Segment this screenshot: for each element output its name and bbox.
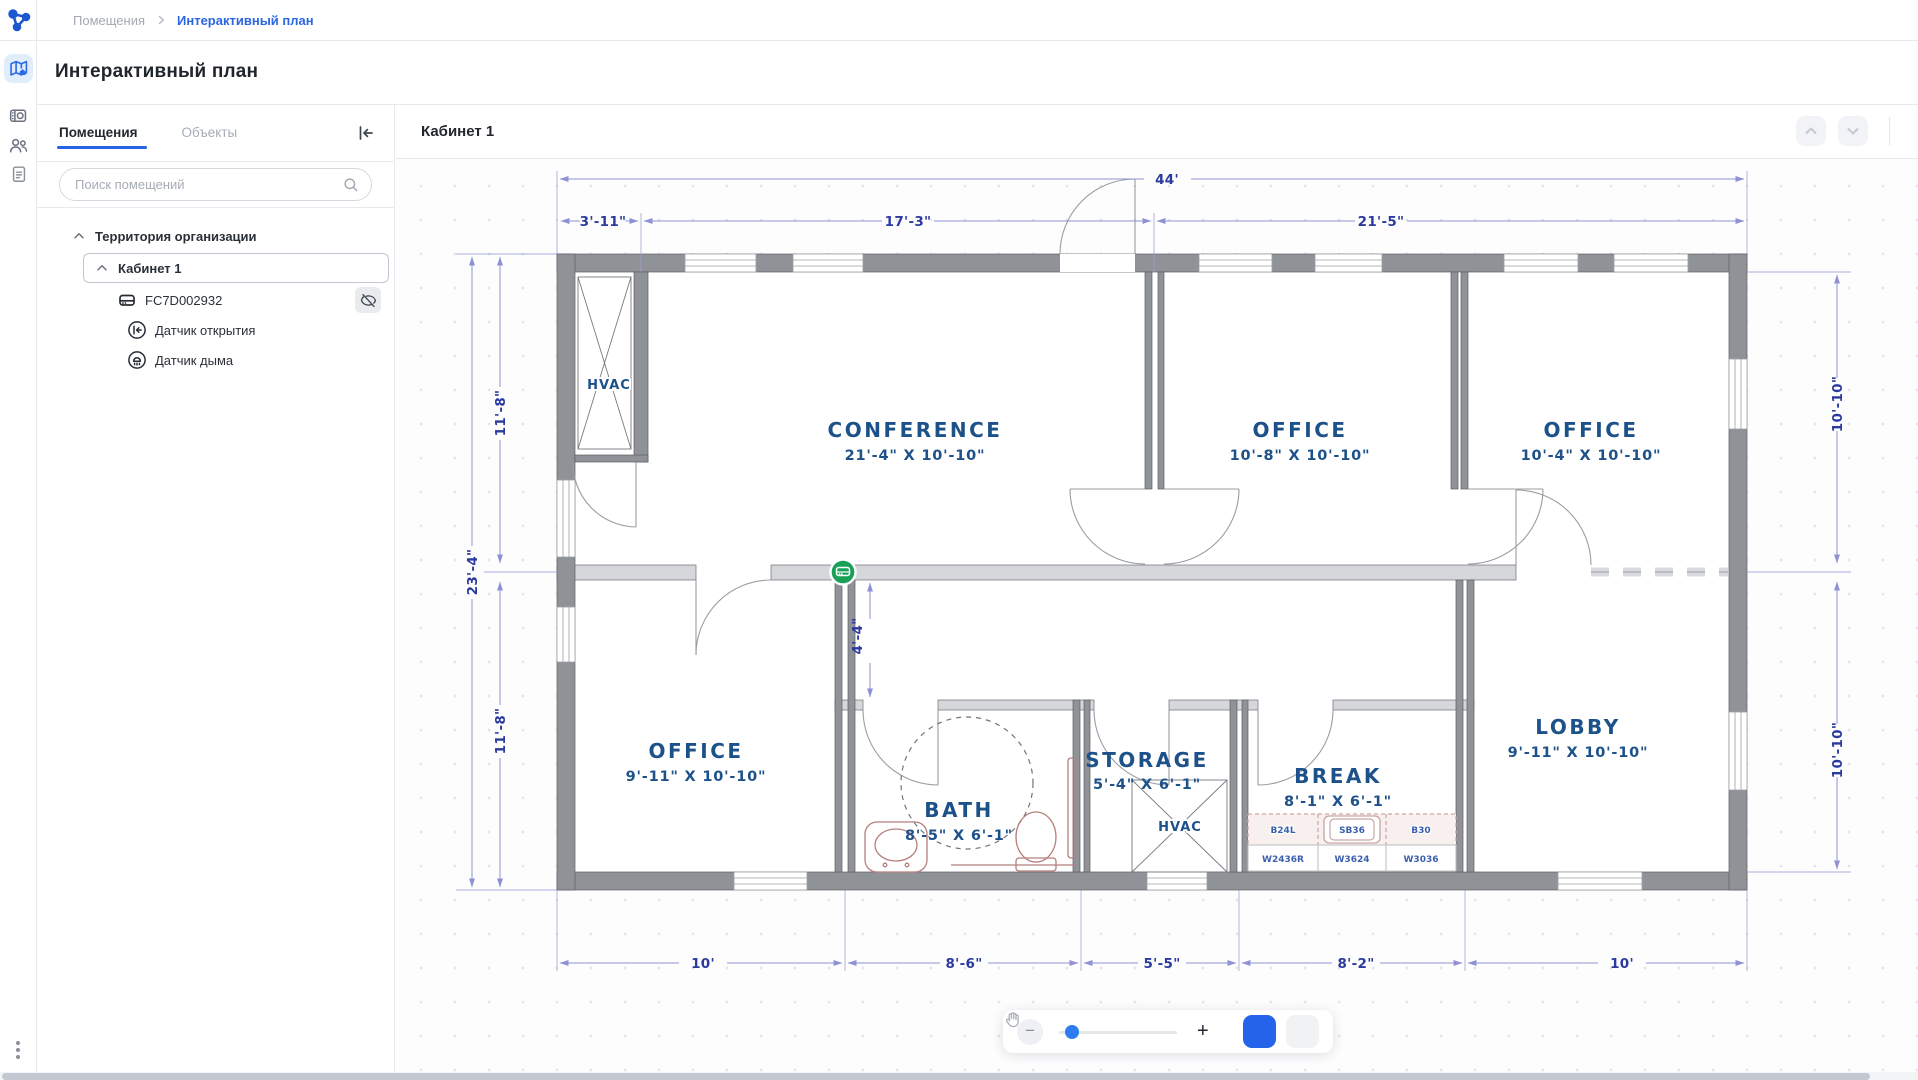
chevron-up-icon bbox=[1801, 121, 1821, 141]
floor-plan: B24L SB36 B30 W2436R W3624 W3036 bbox=[396, 159, 1918, 1072]
horizontal-scrollbar bbox=[0, 1072, 1918, 1080]
breadcrumb-rooms[interactable]: Помещения bbox=[73, 13, 145, 28]
svg-text:W3624: W3624 bbox=[1335, 855, 1370, 865]
rooms-sidebar: Помещения Объекты Территория организации bbox=[37, 104, 395, 1080]
breadcrumb: Помещения Интерактивный план bbox=[37, 0, 1918, 40]
room-break: BREAK bbox=[1294, 764, 1382, 788]
device-marker[interactable] bbox=[831, 560, 856, 585]
hand-icon bbox=[1003, 1010, 1022, 1029]
svg-text:B24L: B24L bbox=[1270, 826, 1295, 836]
svg-text:W3036: W3036 bbox=[1404, 855, 1439, 865]
collapse-panel-icon[interactable] bbox=[356, 123, 376, 143]
divider bbox=[37, 104, 1918, 105]
svg-text:10'-8" X 10'-10": 10'-8" X 10'-10" bbox=[1230, 448, 1371, 464]
canvas-toolbar: − + bbox=[1003, 1010, 1333, 1053]
rooms-tree: Территория организации Кабинет 1 FC7D002… bbox=[37, 208, 394, 375]
zoom-in-button[interactable]: + bbox=[1197, 1020, 1209, 1043]
room-storage: STORAGE bbox=[1085, 748, 1209, 772]
eye-off-icon bbox=[360, 292, 377, 309]
svg-text:23'-4": 23'-4" bbox=[465, 549, 481, 596]
svg-text:5'-4" X 6'-1": 5'-4" X 6'-1" bbox=[1093, 777, 1201, 793]
svg-text:B30: B30 bbox=[1411, 826, 1430, 836]
map-icon bbox=[8, 58, 29, 79]
svg-text:10'-4" X 10'-10": 10'-4" X 10'-10" bbox=[1521, 448, 1662, 464]
front-door-opening bbox=[1060, 254, 1135, 272]
plan-header: Кабинет 1 bbox=[396, 104, 1918, 159]
svg-text:8'-6": 8'-6" bbox=[945, 956, 982, 972]
tree-item-label: Территория организации bbox=[95, 229, 257, 244]
svg-text:10': 10' bbox=[691, 956, 715, 972]
sidebar-item-users[interactable] bbox=[4, 131, 33, 160]
svg-text:W2436R: W2436R bbox=[1262, 855, 1304, 865]
sidebar-item-cameras[interactable] bbox=[4, 101, 33, 130]
hub-device-icon bbox=[117, 290, 137, 310]
tree-item-label: Кабинет 1 bbox=[118, 261, 181, 276]
svg-text:8'-1" X 6'-1": 8'-1" X 6'-1" bbox=[1284, 794, 1392, 810]
room-storage-hvac: HVAC bbox=[1158, 820, 1202, 835]
pan-tool-button[interactable] bbox=[1286, 1015, 1319, 1048]
breadcrumb-current[interactable]: Интерактивный план bbox=[177, 13, 314, 28]
tree-item-opening-sensor[interactable]: Датчик открытия bbox=[37, 315, 394, 345]
svg-text:21'-4" X 10'-10": 21'-4" X 10'-10" bbox=[845, 448, 986, 464]
svg-text:11'-8": 11'-8" bbox=[493, 708, 509, 755]
document-icon bbox=[9, 164, 29, 184]
svg-text:3'-11": 3'-11" bbox=[580, 214, 627, 230]
plan-canvas[interactable]: B24L SB36 B30 W2436R W3624 W3036 bbox=[396, 159, 1918, 1072]
tab-objects[interactable]: Объекты bbox=[182, 125, 238, 140]
svg-text:21'-5": 21'-5" bbox=[1358, 214, 1405, 230]
next-room-button[interactable] bbox=[1838, 116, 1868, 146]
room-bath: BATH bbox=[924, 798, 994, 822]
divider bbox=[0, 40, 1918, 41]
search-box[interactable] bbox=[59, 168, 372, 201]
chevron-down-icon bbox=[1843, 121, 1863, 141]
svg-text:9'-11" X 10'-10": 9'-11" X 10'-10" bbox=[1508, 745, 1649, 761]
tab-rooms[interactable]: Помещения bbox=[59, 125, 138, 140]
select-tool-button[interactable] bbox=[1243, 1015, 1276, 1048]
plan-room-title: Кабинет 1 bbox=[421, 123, 494, 140]
break-counter: B24L SB36 B30 W2436R W3624 W3036 bbox=[1248, 814, 1456, 871]
svg-text:10'-10": 10'-10" bbox=[1830, 722, 1846, 778]
nav-rail bbox=[0, 0, 37, 1080]
tree-item-room-selected[interactable]: Кабинет 1 bbox=[83, 253, 389, 283]
svg-text:4'-4": 4'-4" bbox=[850, 617, 866, 654]
search-input[interactable] bbox=[75, 177, 337, 192]
zoom-slider-knob[interactable] bbox=[1065, 1025, 1079, 1039]
video-camera-icon bbox=[8, 105, 29, 126]
svg-text:10'-10": 10'-10" bbox=[1830, 376, 1846, 432]
divider bbox=[1889, 117, 1890, 146]
plan-area: Кабинет 1 bbox=[396, 104, 1918, 1080]
room-lobby: LOBBY bbox=[1535, 715, 1620, 739]
room-office-1: OFFICE bbox=[1252, 418, 1347, 442]
chevron-up-icon bbox=[94, 260, 110, 276]
tree-item-smoke-sensor[interactable]: Датчик дыма bbox=[37, 345, 394, 375]
svg-text:17'-3": 17'-3" bbox=[885, 214, 932, 230]
tree-item-device[interactable]: FC7D002932 bbox=[37, 285, 394, 315]
tree-item-territory[interactable]: Территория организации bbox=[37, 221, 394, 251]
svg-text:5'-5": 5'-5" bbox=[1143, 956, 1180, 972]
app-logo-icon[interactable] bbox=[7, 8, 31, 32]
svg-text:10': 10' bbox=[1610, 956, 1634, 972]
horizontal-scrollbar-thumb[interactable] bbox=[2, 1073, 1870, 1080]
svg-text:11'-8": 11'-8" bbox=[493, 390, 509, 437]
room-hvac-closet: HVAC bbox=[587, 378, 631, 393]
users-icon bbox=[8, 135, 29, 156]
svg-text:8'-2": 8'-2" bbox=[1337, 956, 1374, 972]
hide-on-plan-button[interactable] bbox=[355, 287, 381, 313]
search-icon bbox=[342, 176, 360, 194]
svg-text:44': 44' bbox=[1155, 172, 1179, 188]
room-conference: CONFERENCE bbox=[828, 418, 1003, 442]
rail-more-menu[interactable] bbox=[13, 1038, 23, 1064]
svg-text:8'-5" X 6'-1": 8'-5" X 6'-1" bbox=[905, 828, 1013, 844]
page-title: Интерактивный план bbox=[55, 61, 258, 83]
tree-item-label: Датчик дыма bbox=[155, 353, 233, 368]
active-tab-underline bbox=[57, 146, 147, 149]
search-row bbox=[37, 162, 394, 208]
title-bar: Интерактивный план bbox=[37, 40, 1918, 104]
svg-text:9'-11" X 10'-10": 9'-11" X 10'-10" bbox=[626, 769, 767, 785]
opening-sensor-icon bbox=[127, 320, 147, 340]
room-office-2: OFFICE bbox=[1543, 418, 1638, 442]
smoke-sensor-icon bbox=[127, 350, 147, 370]
sidebar-item-documents[interactable] bbox=[4, 159, 33, 188]
tree-item-label: FC7D002932 bbox=[145, 293, 222, 308]
svg-text:SB36: SB36 bbox=[1339, 826, 1365, 836]
chevron-right-icon bbox=[154, 13, 168, 27]
prev-room-button[interactable] bbox=[1796, 116, 1826, 146]
chevron-up-icon bbox=[71, 228, 87, 244]
sidebar-tabs: Помещения Объекты bbox=[37, 104, 394, 162]
zoom-slider[interactable] bbox=[1059, 1025, 1177, 1039]
sidebar-item-map[interactable] bbox=[4, 54, 33, 83]
tree-item-label: Датчик открытия bbox=[155, 323, 255, 338]
room-office-3: OFFICE bbox=[648, 739, 743, 763]
